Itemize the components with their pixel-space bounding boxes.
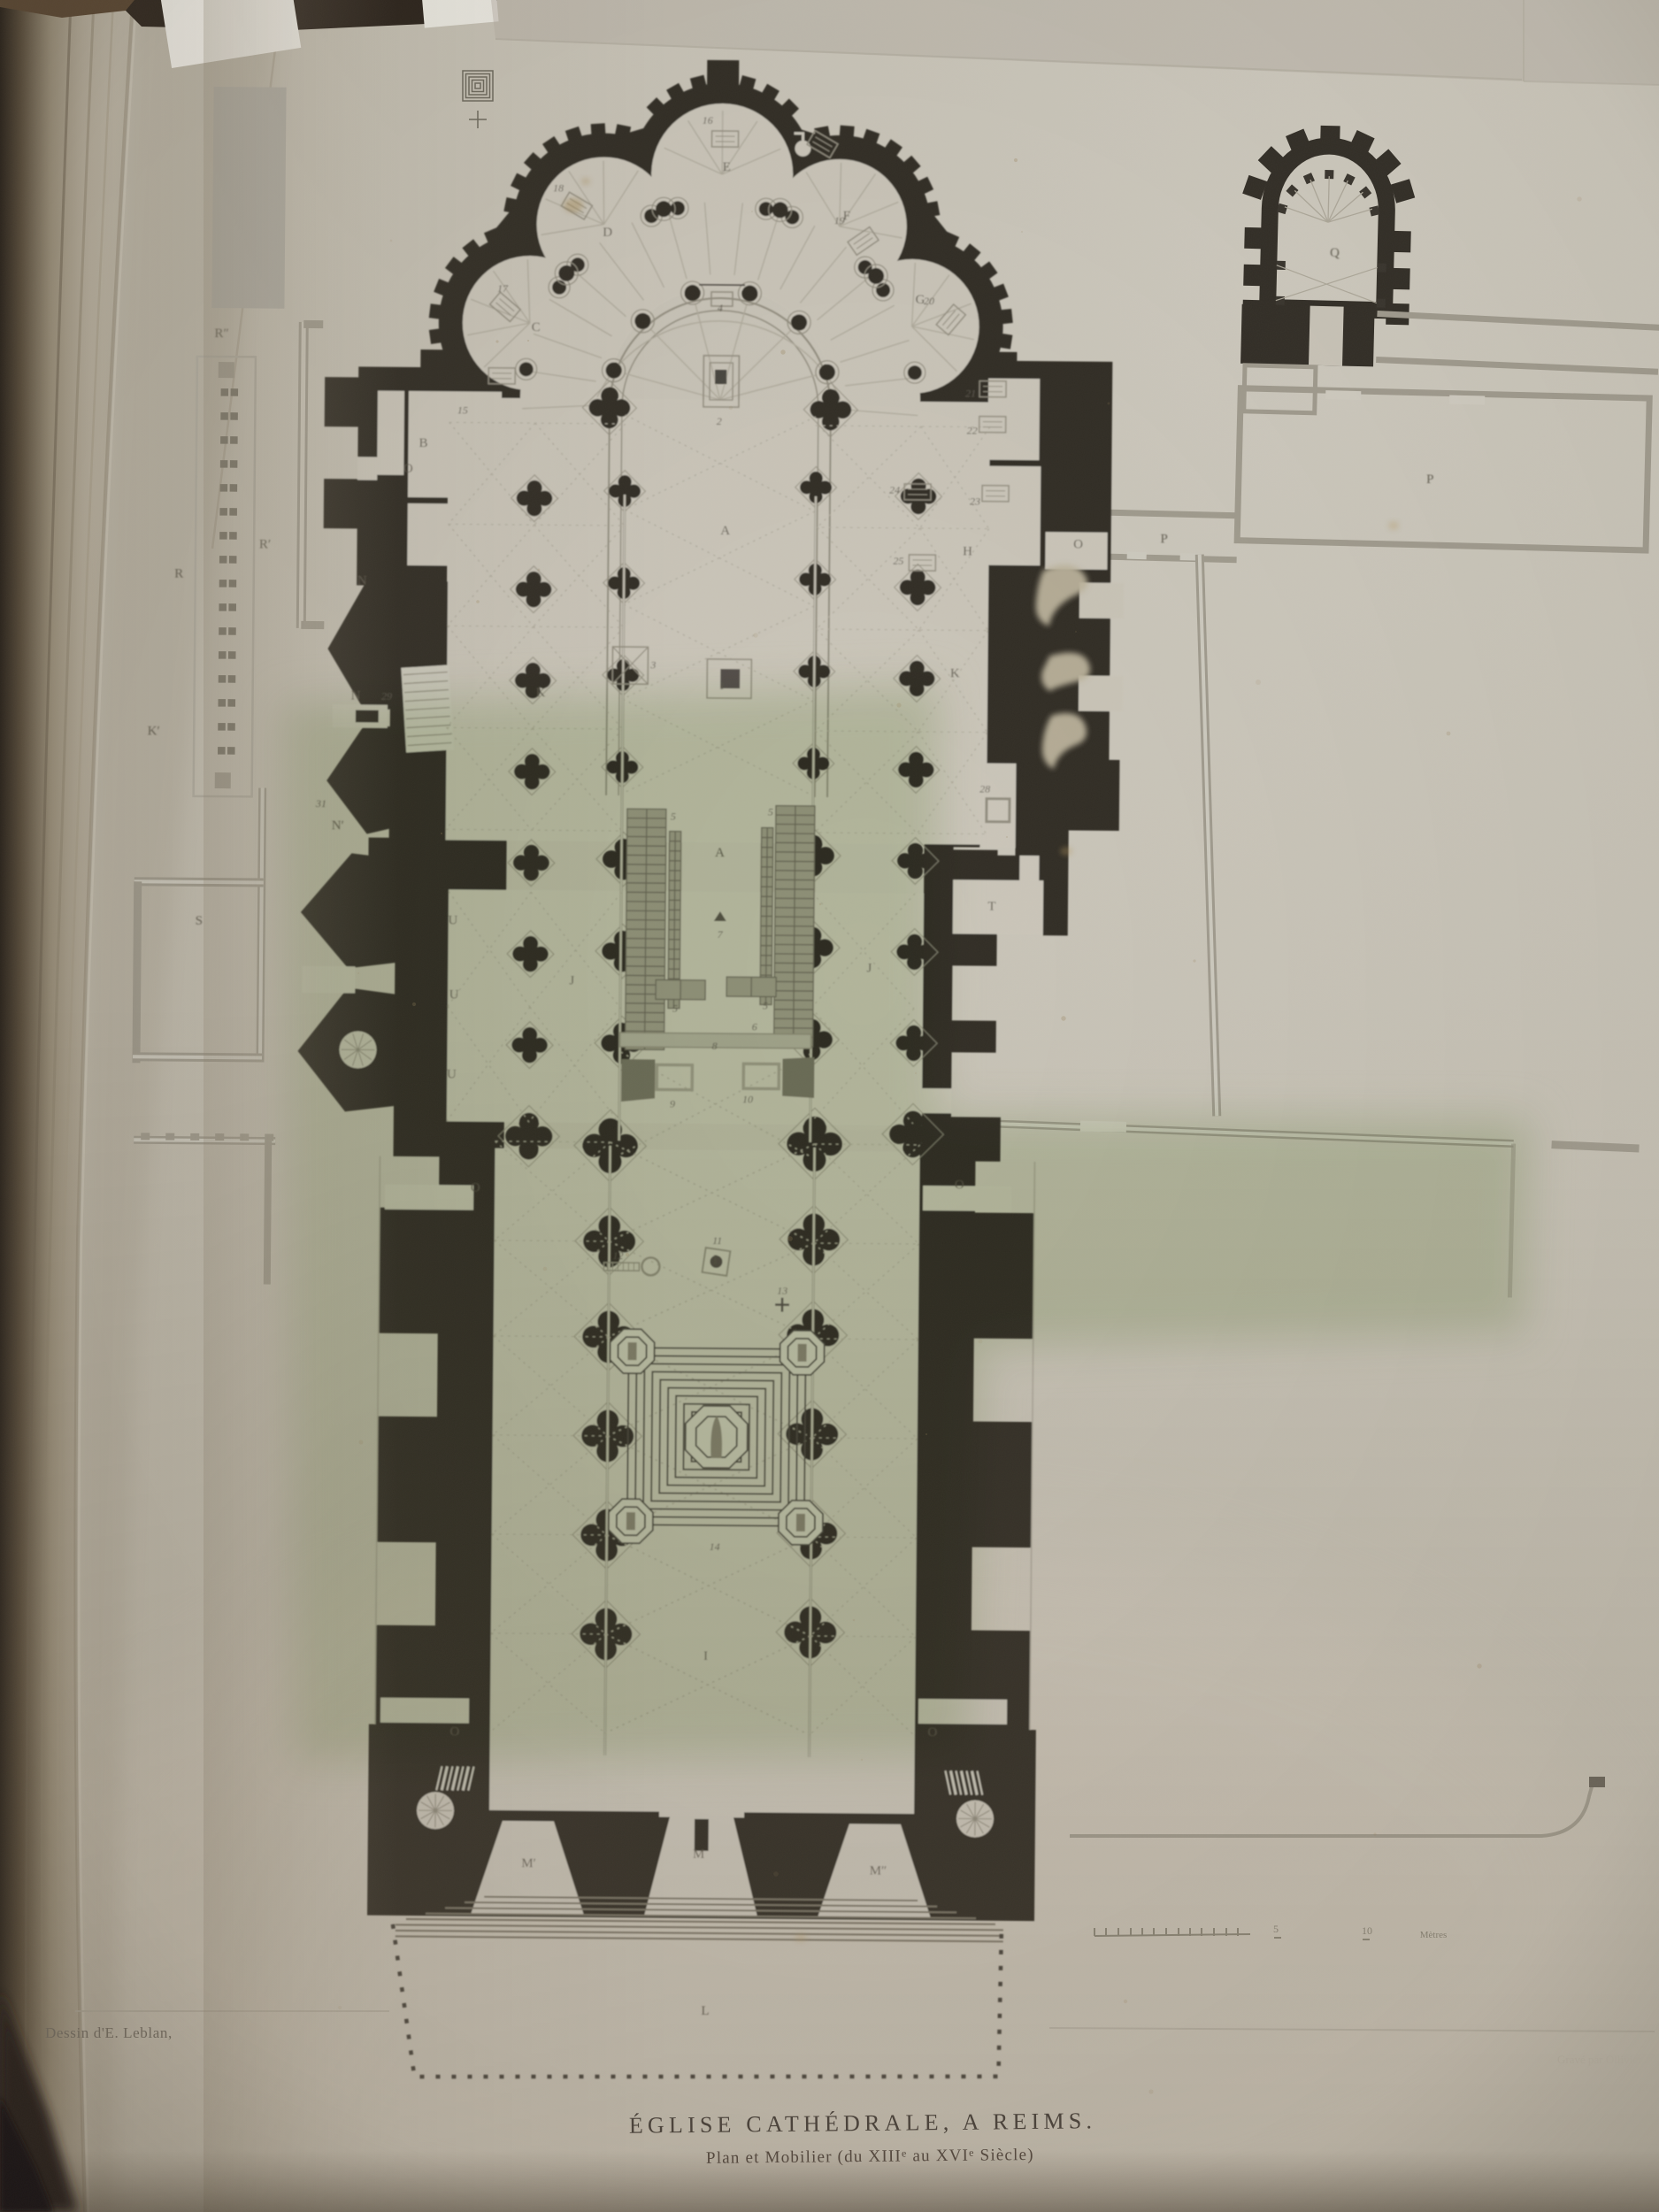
svg-text:Gravé par Ollivier: Gravé par Ollivier bbox=[1557, 2053, 1642, 2066]
svg-text:ÉGLISE CATHÉDRALE, A REIMS.: ÉGLISE CATHÉDRALE, A REIMS. bbox=[629, 2108, 1097, 2139]
svg-text:Plan et Mobilier (du XIIIe au: Plan et Mobilier (du XIIIe au XVIe Siècl… bbox=[706, 2146, 1034, 2168]
svg-text:Dessin d'E. Leblan,: Dessin d'E. Leblan, bbox=[45, 2024, 173, 2041]
